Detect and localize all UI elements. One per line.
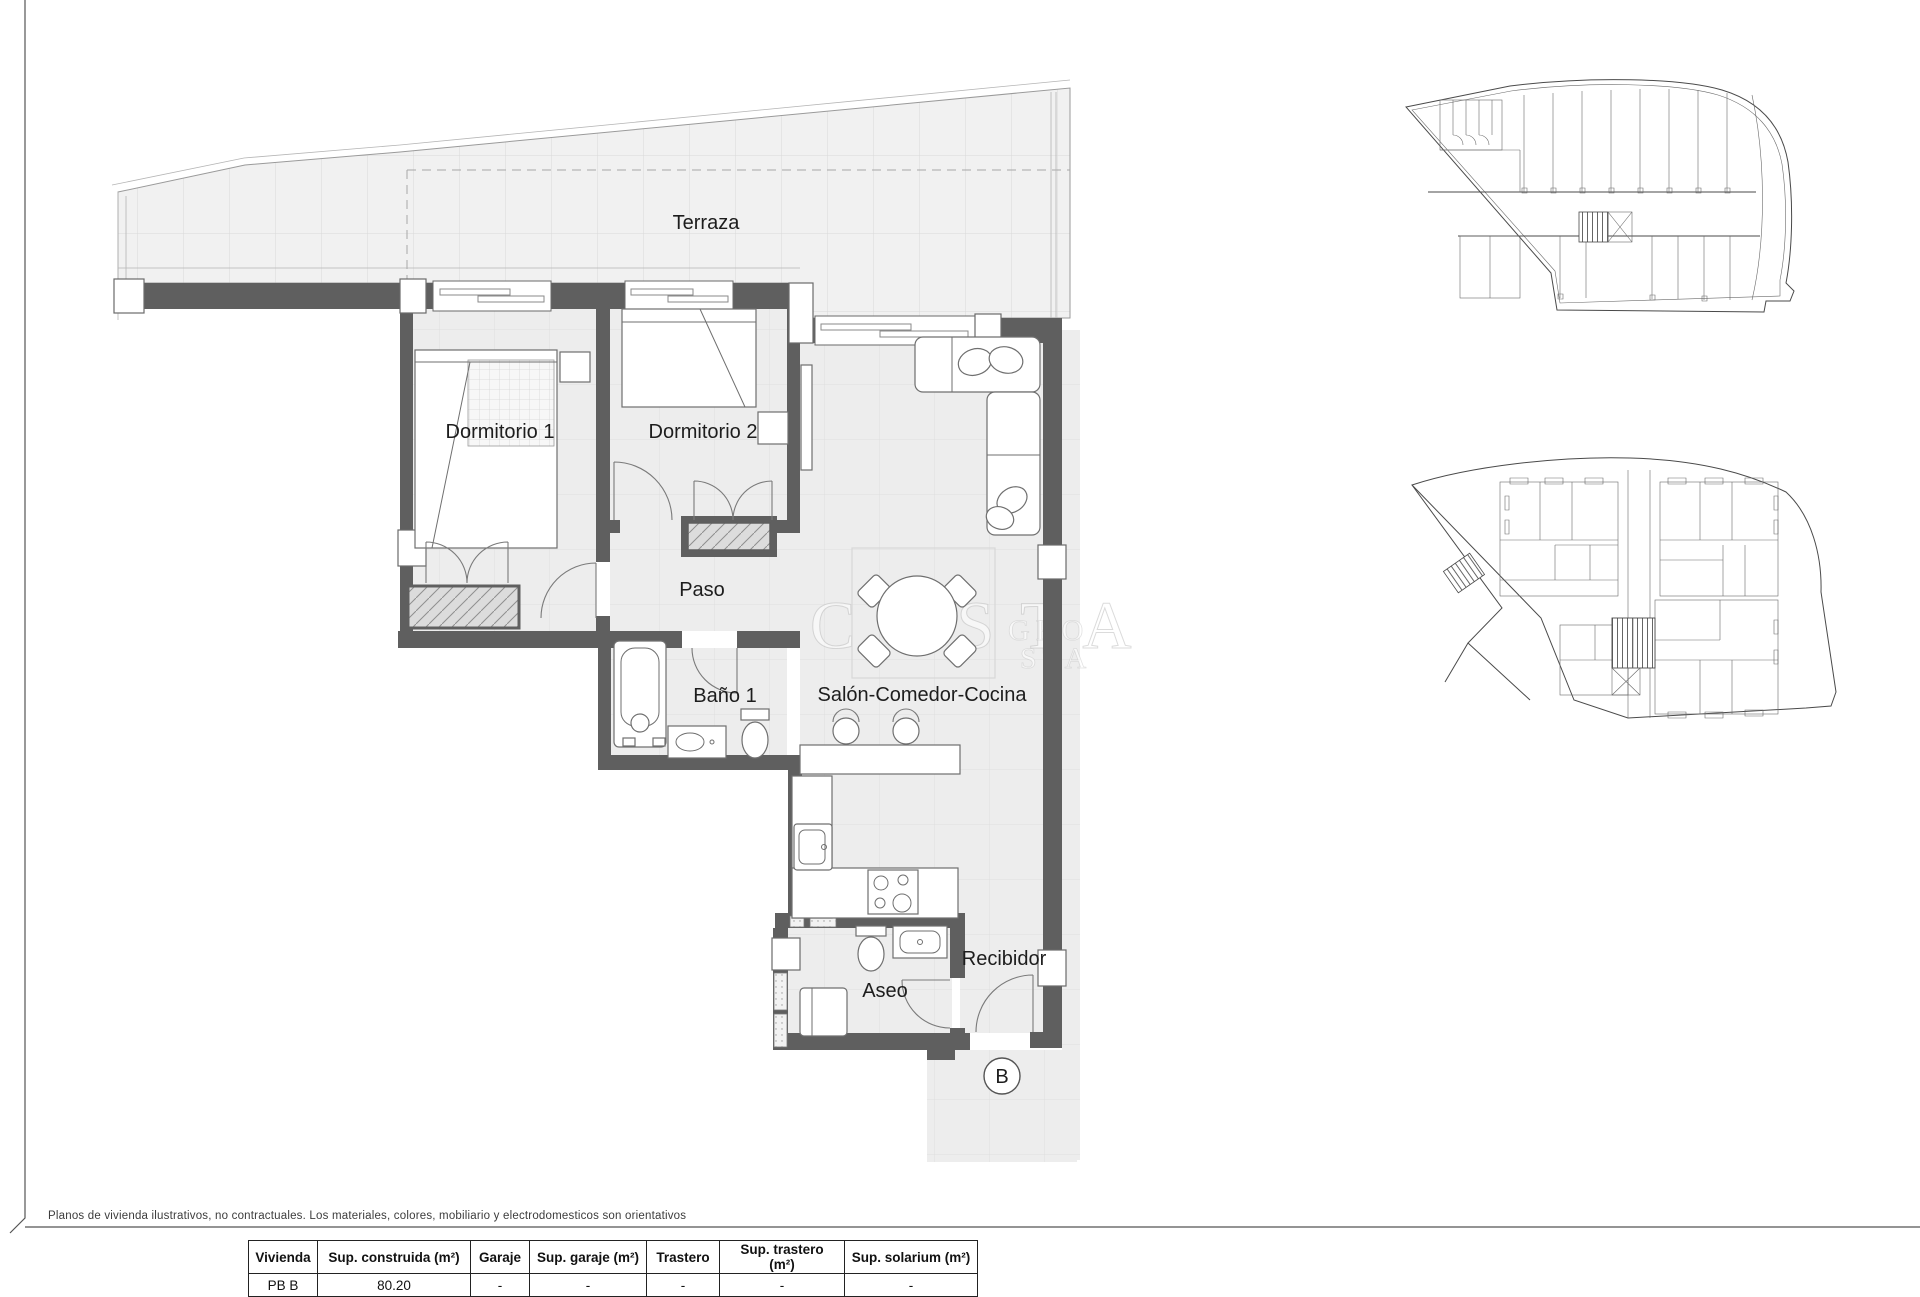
- room-label-aseo: Aseo: [862, 980, 908, 1002]
- floor-side-strip: [1062, 330, 1080, 1160]
- cell-sup-trastero: -: [720, 1274, 845, 1297]
- surface-table: Vivienda Sup. construida (m²) Garaje Sup…: [248, 1240, 978, 1297]
- site-units: [1500, 470, 1778, 718]
- garage-stalls-bottom: [1460, 236, 1730, 301]
- pillar: [1038, 545, 1066, 579]
- cell-garaje: -: [471, 1274, 530, 1297]
- garage-storerooms: [1440, 100, 1520, 192]
- watermark: COSTA GRO STA: [810, 587, 1157, 675]
- col-header-vivienda: Vivienda: [249, 1241, 318, 1274]
- aseo-sink: [893, 926, 947, 958]
- wardrobe-dormitorio-1: [408, 586, 519, 628]
- site-ramp: [1443, 553, 1484, 593]
- pillar: [400, 279, 426, 313]
- disclaimer-text: Planos de vivienda ilustrativos, no cont…: [48, 1210, 686, 1222]
- hob: [868, 870, 918, 914]
- insulation-block: [774, 973, 787, 1010]
- wardrobe-paso: [688, 523, 770, 550]
- unit-marker-label: B: [995, 1066, 1008, 1088]
- room-label-salon: Salón-Comedor-Cocina: [818, 684, 1028, 706]
- pillar: [114, 279, 144, 313]
- room-label-dormitorio-2: Dormitorio 2: [649, 421, 758, 443]
- floor-recibidor: [960, 913, 1043, 1033]
- plan-sheet: COSTA GRO STA: [0, 0, 1920, 1280]
- cell-trastero: -: [647, 1274, 720, 1297]
- room-label-bano: Baño 1: [693, 685, 756, 707]
- garage-stalls-top: [1522, 89, 1730, 193]
- tv-unit: [801, 365, 812, 470]
- room-label-recibidor: Recibidor: [962, 948, 1047, 970]
- bathroom-sink: [668, 726, 726, 758]
- col-header-sup-solarium: Sup. solarium (m²): [845, 1241, 978, 1274]
- cell-sup-garaje: -: [530, 1274, 647, 1297]
- surface-table-row: PB B 80.20 - - - - -: [249, 1274, 978, 1297]
- col-header-sup-garaje: Sup. garaje (m²): [530, 1241, 647, 1274]
- room-label-terraza: Terraza: [673, 212, 741, 234]
- col-header-trastero: Trastero: [647, 1241, 720, 1274]
- insulation-block: [774, 1014, 787, 1047]
- washing-machine: [800, 988, 847, 1036]
- bathtub: [614, 641, 666, 747]
- cell-sup-construida: 80.20: [318, 1274, 471, 1297]
- site-stair-core: [1612, 618, 1655, 695]
- site-key-plan: [1412, 458, 1836, 718]
- window-dormitorio-1: [433, 281, 551, 311]
- bathroom-toilet: [741, 709, 769, 758]
- surface-table-header-row: Vivienda Sup. construida (m²) Garaje Sup…: [249, 1241, 978, 1274]
- duct-niche: [772, 938, 800, 970]
- room-label-paso: Paso: [679, 579, 725, 601]
- garage-stair-core: [1579, 212, 1632, 242]
- garage-key-plan: [1406, 80, 1794, 312]
- col-header-garaje: Garaje: [471, 1241, 530, 1274]
- cell-sup-solarium: -: [845, 1274, 978, 1297]
- col-header-sup-trastero: Sup. trastero (m²): [720, 1241, 845, 1274]
- aseo-toilet: [856, 926, 886, 971]
- window-dormitorio-2: [625, 281, 733, 311]
- cell-vivienda: PB B: [249, 1274, 318, 1297]
- unit-marker: B: [984, 1058, 1020, 1094]
- pillar: [789, 283, 813, 343]
- col-header-sup-construida: Sup. construida (m²): [318, 1241, 471, 1274]
- room-label-dormitorio-1: Dormitorio 1: [446, 421, 555, 443]
